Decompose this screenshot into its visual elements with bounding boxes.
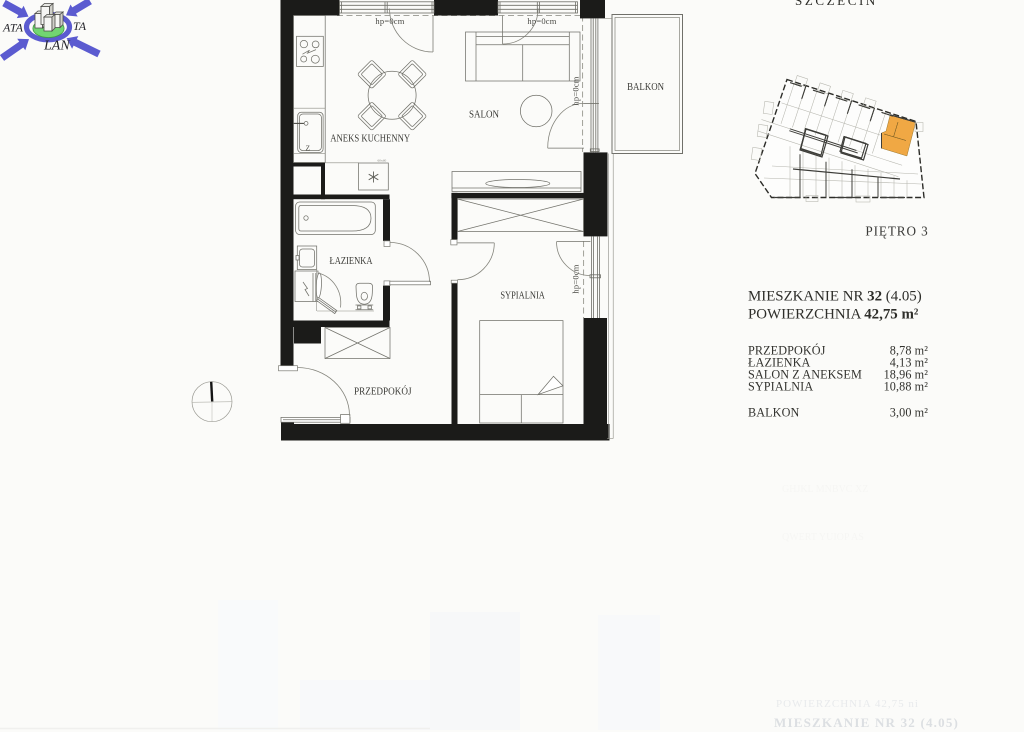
svg-text:ATA: ATA (2, 21, 24, 35)
svg-text:SYPIALNIA: SYPIALNIA (500, 291, 545, 302)
svg-text:SALON: SALON (469, 110, 499, 121)
svg-text:PIĘTRO 3: PIĘTRO 3 (865, 224, 928, 239)
svg-text:ŁAZIENKA: ŁAZIENKA (330, 256, 374, 267)
svg-text:ANEKS KUCHENNY: ANEKS KUCHENNY (330, 133, 410, 144)
svg-text:MIESZKANIE NR 32 (4.05): MIESZKANIE NR 32 (4.05) (748, 289, 922, 305)
svg-text:SZCZECIN: SZCZECIN (795, 0, 878, 8)
svg-text:BALKON: BALKON (748, 406, 799, 420)
svg-text:MIESZKANIE NR 32 (4.05): MIESZKANIE NR 32 (4.05) (774, 715, 959, 730)
svg-text:GHJKL MNBVC XZ: GHJKL MNBVC XZ (782, 484, 868, 495)
svg-text:10,88 m²: 10,88 m² (884, 380, 929, 394)
svg-text:hp=0cm: hp=0cm (375, 16, 404, 26)
svg-text:POWIERZCHNIA 42,75 m²: POWIERZCHNIA 42,75 m² (748, 307, 919, 323)
svg-text:hp=0cm: hp=0cm (571, 264, 581, 293)
svg-text:3,00 m²: 3,00 m² (890, 406, 928, 420)
svg-text:BALKON: BALKON (627, 82, 664, 93)
svg-text:SYPIALNIA: SYPIALNIA (748, 380, 813, 394)
svg-text:TA: TA (73, 19, 87, 33)
svg-text:hp=0cm: hp=0cm (571, 76, 581, 105)
svg-text:Z: Z (306, 144, 311, 153)
svg-text:LAN: LAN (43, 39, 70, 54)
svg-text:POWIERZCHNIA 42,75 ni: POWIERZCHNIA 42,75 ni (776, 698, 919, 710)
svg-text:QWERT YUIOP AS: QWERT YUIOP AS (782, 532, 864, 543)
svg-text:PRZEDPOKÓJ: PRZEDPOKÓJ (354, 386, 412, 398)
svg-text:60x60: 60x60 (378, 159, 387, 163)
svg-text:hp=0cm: hp=0cm (527, 16, 556, 26)
